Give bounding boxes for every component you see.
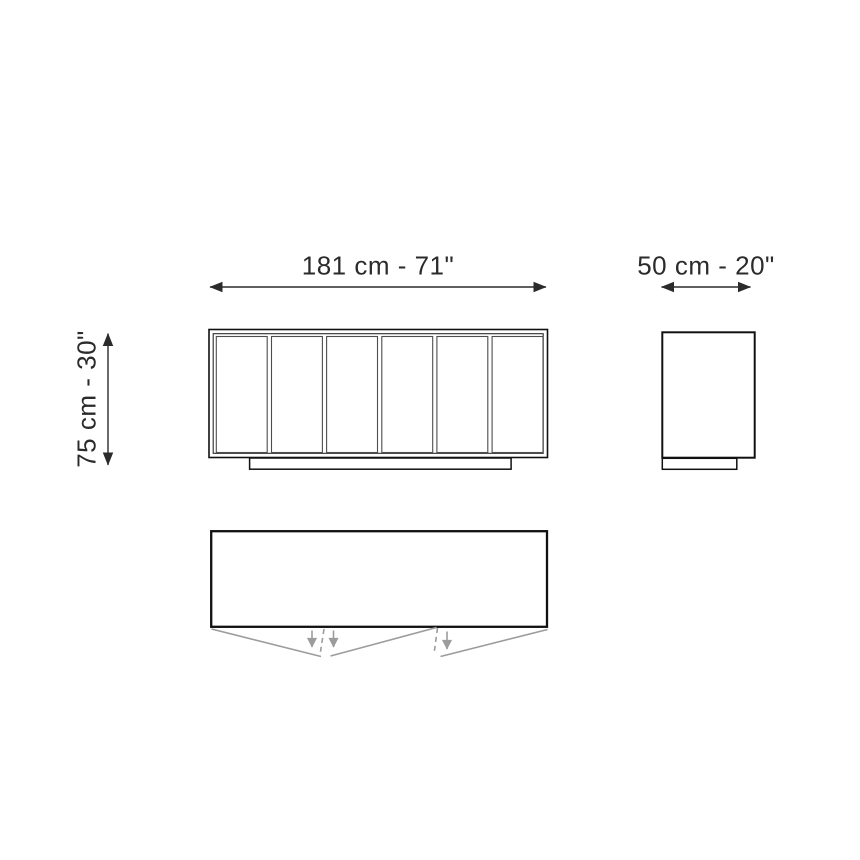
door-swing-line bbox=[331, 628, 437, 657]
dimension-diagram: 181 cm - 71" 50 cm - 20" 75 cm - 30" bbox=[0, 0, 860, 860]
door-pivot-dashline bbox=[434, 628, 438, 654]
door-panel bbox=[272, 337, 323, 453]
door-opening-indicators bbox=[212, 628, 548, 657]
top-view bbox=[211, 531, 547, 656]
side-view bbox=[662, 332, 754, 469]
drawing-canvas bbox=[0, 0, 860, 860]
side-view-body bbox=[662, 332, 754, 457]
door-pivot-dashline bbox=[320, 629, 324, 655]
door-panel bbox=[437, 337, 488, 453]
door-panel bbox=[216, 337, 267, 453]
top-view-body bbox=[211, 531, 547, 627]
front-view bbox=[209, 330, 548, 470]
side-plinth bbox=[662, 458, 737, 469]
door-swing-line bbox=[212, 629, 322, 657]
door-panel bbox=[327, 337, 378, 453]
door-swing-line bbox=[441, 630, 548, 657]
door-panel bbox=[492, 337, 543, 453]
door-panel bbox=[382, 337, 433, 453]
front-plinth bbox=[250, 458, 512, 469]
